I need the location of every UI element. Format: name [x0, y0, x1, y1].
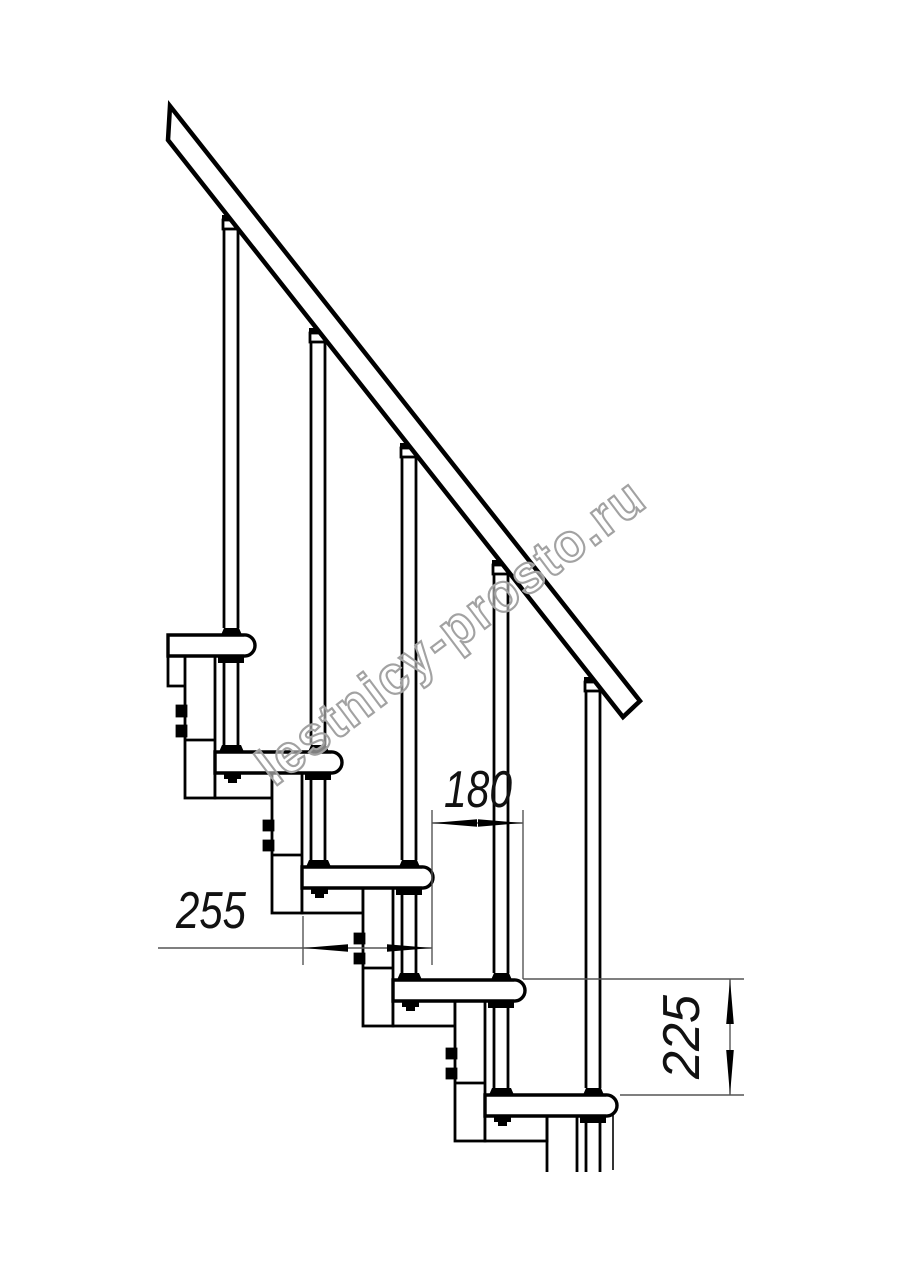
module-clip [177, 726, 186, 736]
technical-drawing-page: 180 255 225 lestnicy-prosto.ru [0, 0, 914, 1280]
dimension-label-depth: 255 [175, 882, 247, 940]
dimension-labels: 180 255 225 [175, 761, 711, 1080]
staircase-drawing: 180 255 225 lestnicy-prosto.ru [0, 0, 914, 1280]
module-clip [355, 954, 364, 963]
module-column [455, 1000, 485, 1141]
support-post [218, 656, 244, 752]
arrowhead-right [387, 944, 432, 952]
tread [302, 867, 433, 888]
dimension-label-run: 180 [444, 761, 512, 819]
support-post [396, 888, 422, 980]
support-post [580, 1116, 606, 1172]
baluster [583, 677, 604, 1095]
module-clip [264, 821, 273, 830]
module-clip [447, 1069, 456, 1078]
module-clip [264, 841, 273, 850]
arrowhead-left [303, 944, 348, 952]
tread [485, 1095, 617, 1116]
baluster-foot [399, 860, 420, 867]
dimensions: 180 255 225 [158, 761, 744, 1095]
arrowhead-up [726, 979, 734, 1024]
support-module [393, 1000, 485, 1141]
tread [168, 635, 255, 656]
module-clip [447, 1049, 456, 1058]
support-post [488, 1001, 514, 1095]
dimension-label-rise: 225 [653, 994, 711, 1080]
tread [393, 980, 525, 1001]
arrowhead-down [726, 1050, 734, 1095]
module-clip [355, 934, 364, 943]
baluster-foot [221, 628, 242, 635]
baluster [221, 215, 242, 635]
arrowhead-right [478, 819, 523, 827]
module-column [363, 887, 393, 1026]
module-column [272, 772, 302, 913]
arrowhead-left [432, 819, 477, 827]
watermark: lestnicy-prosto.ru [245, 466, 656, 797]
module-plate-edge [168, 656, 186, 686]
baluster-foot [583, 1088, 604, 1095]
baluster-foot [491, 973, 512, 980]
support-module [168, 655, 215, 798]
module-plate [215, 772, 272, 798]
module-column [185, 655, 215, 798]
module-clip [177, 706, 186, 716]
support-post [305, 773, 331, 867]
support-module [302, 887, 393, 1026]
